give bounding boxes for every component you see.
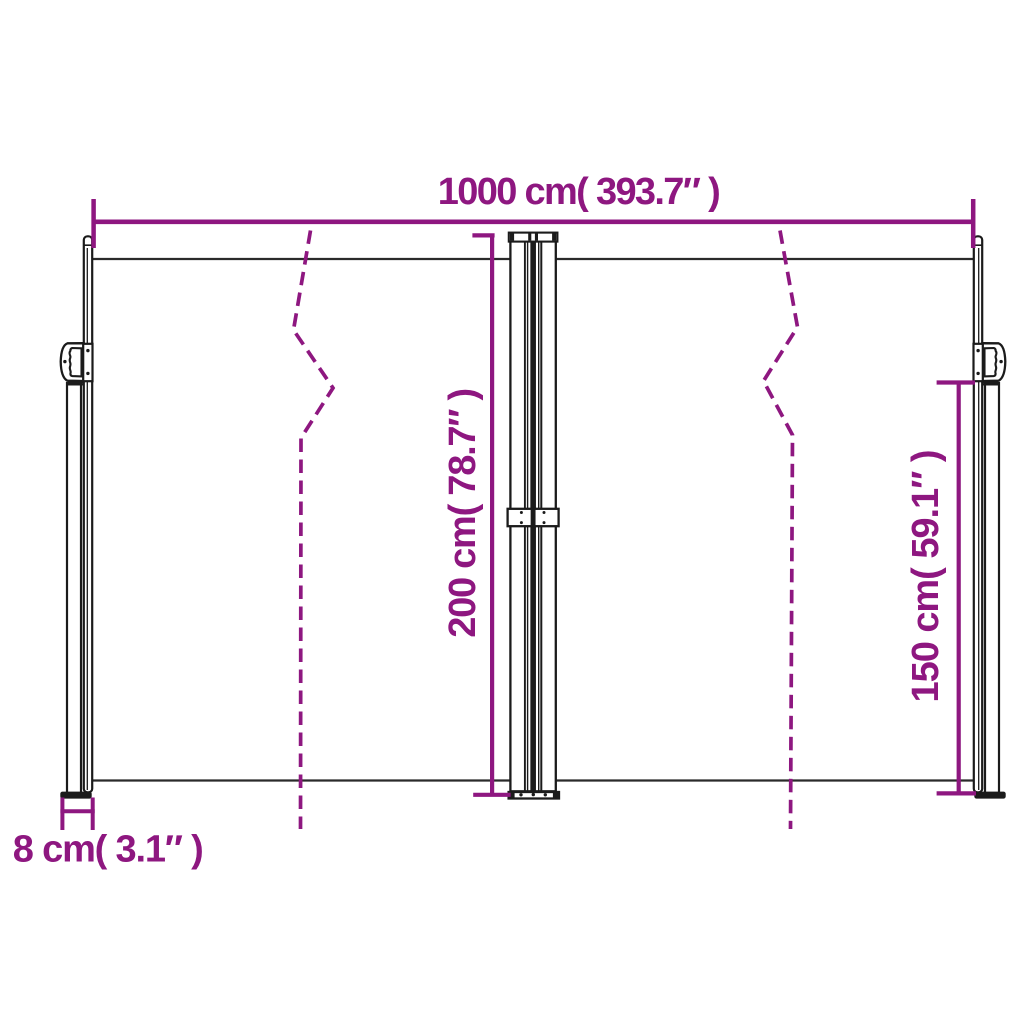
svg-text:150 cm( 59.1″ ): 150 cm( 59.1″ ) — [905, 450, 947, 703]
svg-text:8 cm( 3.1″ ): 8 cm( 3.1″ ) — [13, 829, 204, 871]
svg-text:200 cm( 78.7″ ): 200 cm( 78.7″ ) — [442, 388, 484, 638]
svg-text:1000 cm( 393.7″ ): 1000 cm( 393.7″ ) — [438, 171, 721, 213]
